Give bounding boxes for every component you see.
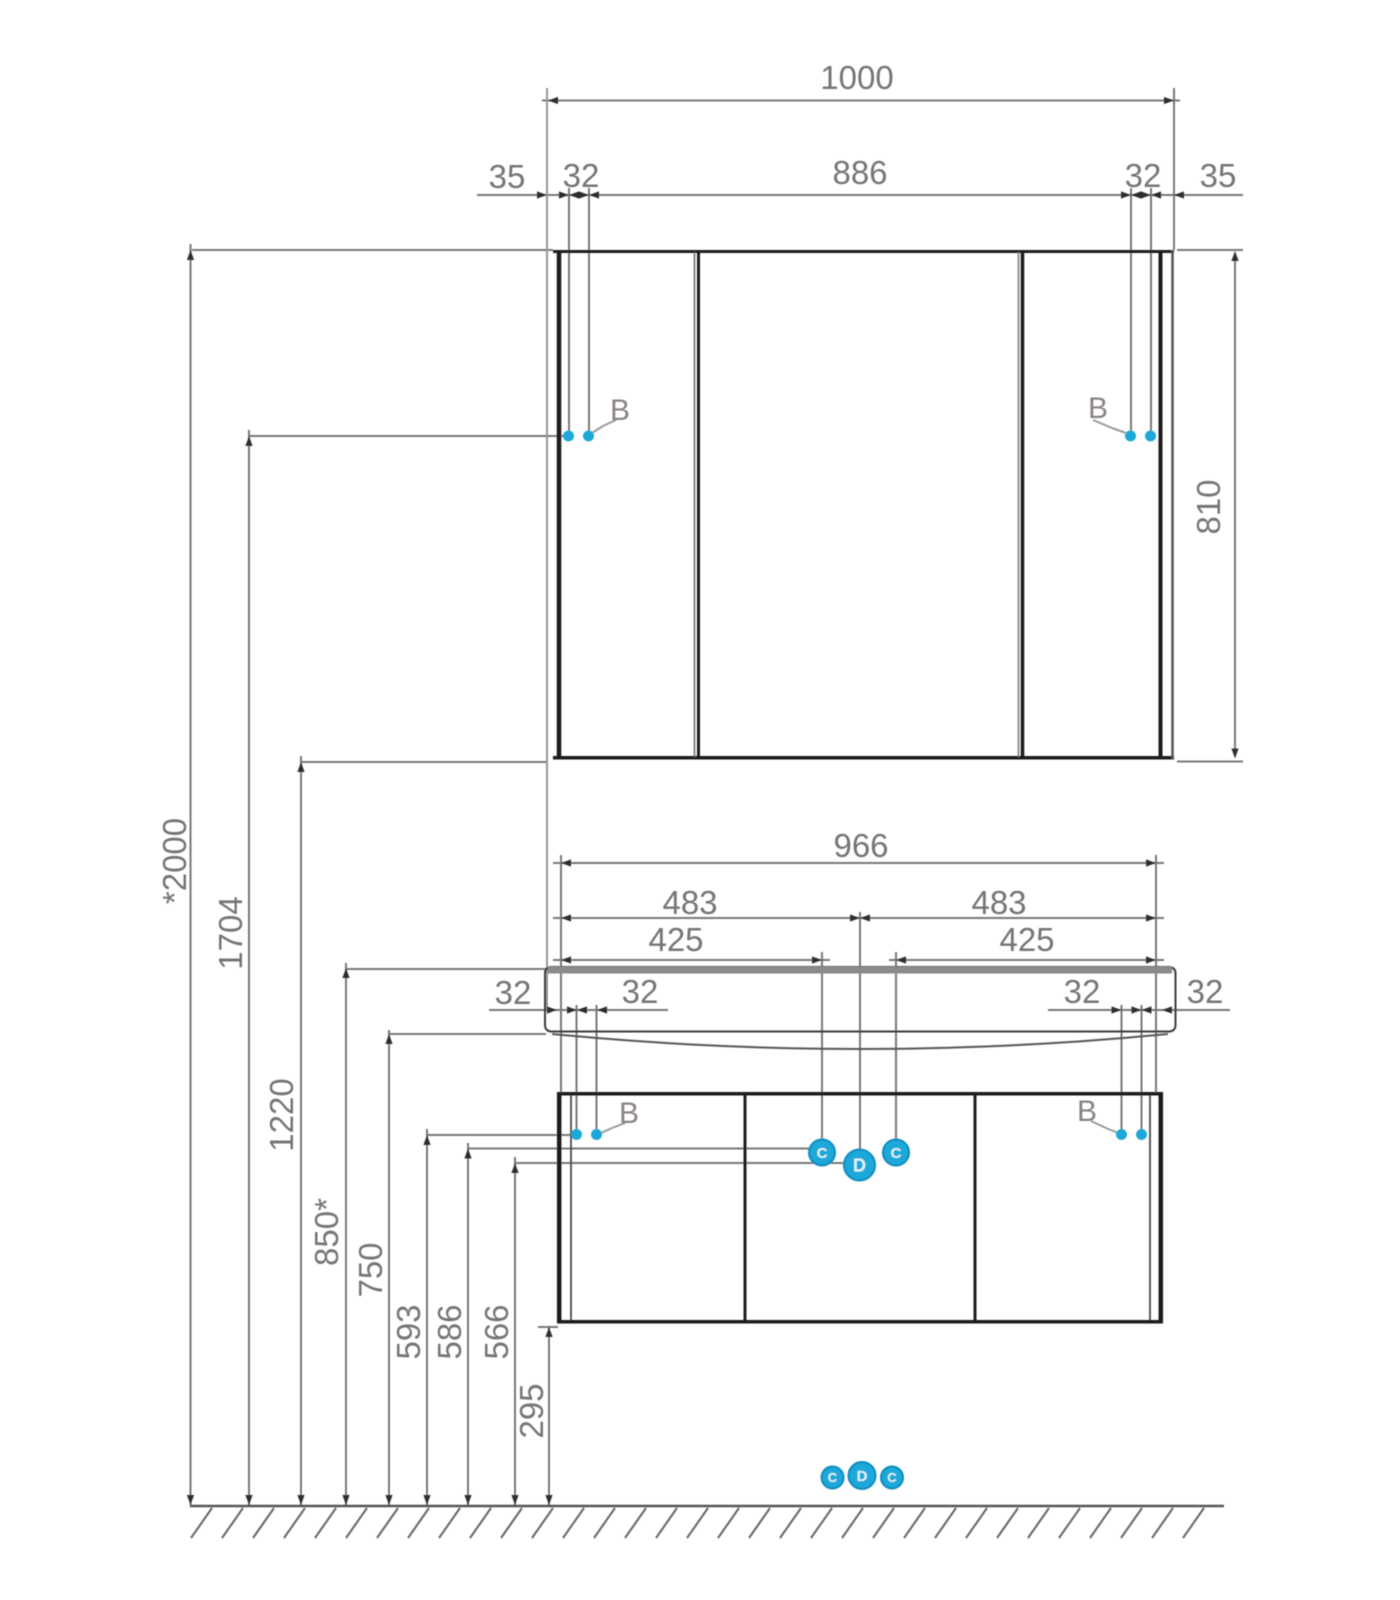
svg-text:750: 750 — [352, 1242, 389, 1297]
svg-text:1000: 1000 — [820, 59, 893, 96]
svg-text:32: 32 — [495, 974, 532, 1011]
svg-text:566: 566 — [478, 1304, 515, 1359]
svg-text:C: C — [891, 1145, 902, 1162]
svg-text:1704: 1704 — [212, 896, 249, 969]
svg-text:483: 483 — [662, 884, 717, 921]
svg-text:593: 593 — [390, 1304, 427, 1359]
svg-text:586: 586 — [431, 1304, 468, 1359]
svg-text:483: 483 — [971, 884, 1026, 921]
svg-text:810: 810 — [1190, 479, 1227, 534]
svg-text:B: B — [610, 394, 630, 427]
svg-text:B: B — [619, 1097, 639, 1130]
svg-text:32: 32 — [1125, 157, 1162, 194]
svg-text:850*: 850* — [308, 1198, 345, 1266]
svg-text:425: 425 — [999, 921, 1054, 958]
svg-text:D: D — [853, 1155, 866, 1175]
svg-text:32: 32 — [622, 973, 659, 1010]
svg-text:B: B — [1077, 1095, 1097, 1128]
svg-text:32: 32 — [1064, 973, 1101, 1010]
svg-text:C: C — [828, 1470, 838, 1485]
svg-text:886: 886 — [832, 154, 887, 191]
svg-text:295: 295 — [513, 1383, 550, 1438]
svg-text:C: C — [817, 1145, 828, 1162]
svg-text:D: D — [857, 1468, 868, 1485]
svg-text:1220: 1220 — [263, 1078, 300, 1151]
svg-text:35: 35 — [489, 158, 526, 195]
svg-text:425: 425 — [648, 921, 703, 958]
svg-text:32: 32 — [563, 157, 600, 194]
svg-text:C: C — [887, 1470, 897, 1485]
svg-text:B: B — [1088, 392, 1108, 425]
svg-text:32: 32 — [1187, 973, 1224, 1010]
svg-text:*2000: *2000 — [156, 818, 193, 904]
svg-text:35: 35 — [1200, 157, 1237, 194]
svg-text:966: 966 — [833, 827, 888, 864]
